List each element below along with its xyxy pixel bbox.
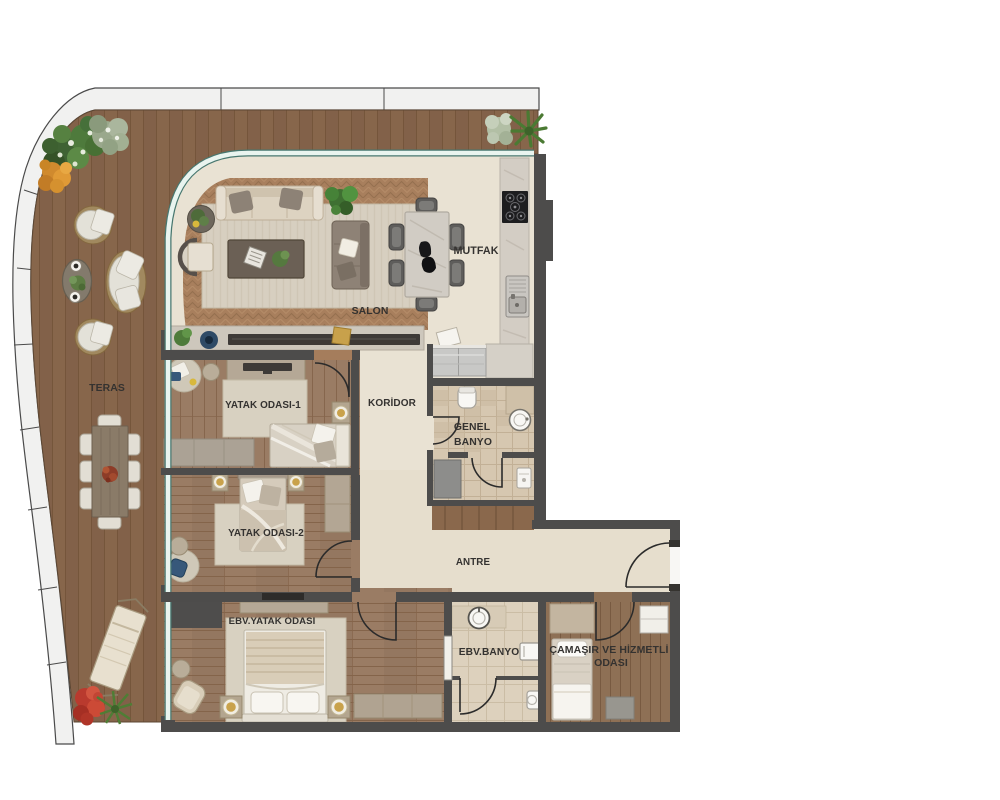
svg-text:YATAK ODASI-2: YATAK ODASI-2 (228, 528, 304, 539)
svg-text:GENEL: GENEL (454, 422, 491, 433)
svg-text:TERAS: TERAS (89, 383, 125, 394)
svg-text:SALON: SALON (352, 306, 389, 317)
svg-text:ODASI: ODASI (594, 657, 628, 669)
svg-text:KORİDOR: KORİDOR (368, 396, 417, 409)
svg-text:EBV.YATAK ODASI: EBV.YATAK ODASI (229, 616, 316, 627)
svg-text:BANYO: BANYO (454, 437, 492, 448)
svg-text:YATAK ODASI-1: YATAK ODASI-1 (225, 400, 301, 411)
svg-text:MUTFAK: MUTFAK (453, 245, 498, 257)
svg-text:ANTRE: ANTRE (456, 557, 491, 568)
svg-text:EBV.BANYO: EBV.BANYO (459, 647, 520, 658)
svg-text:ÇAMAŞIR VE HİZMETLİ: ÇAMAŞIR VE HİZMETLİ (549, 643, 668, 656)
